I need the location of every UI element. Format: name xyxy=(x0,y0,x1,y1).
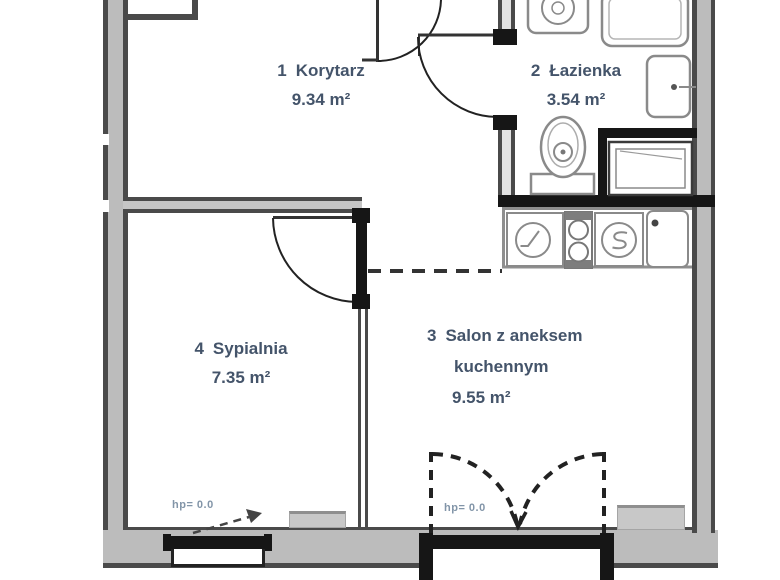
room-label-bathroom: 2Łazienka 3.54 m² xyxy=(500,56,652,114)
room-number: 1 xyxy=(277,61,286,80)
room-name: Korytarz xyxy=(296,61,365,80)
two-burner-stove-icon xyxy=(565,212,592,268)
bedroom-door-jamb-bottom xyxy=(352,294,370,309)
niche-right-edge xyxy=(192,0,198,20)
bedroom-window-cap-left xyxy=(163,534,171,551)
entry-door xyxy=(362,0,441,62)
bathroom-door-jamb-bottom xyxy=(493,115,517,130)
niche-bottom-edge xyxy=(123,14,198,20)
room-area: 9.34 m² xyxy=(241,85,401,114)
wall-right-inner-edge xyxy=(692,0,697,533)
bathroom-door-jamb-top xyxy=(493,29,517,45)
washbasin-icon xyxy=(647,56,696,117)
wall-bottom-outer-edge-right xyxy=(614,563,718,568)
wall-right-fill xyxy=(697,0,711,530)
wall-bedroom-top-line2 xyxy=(123,209,362,213)
wall-left-fill xyxy=(108,0,124,563)
shower-tray-icon xyxy=(602,0,688,46)
balcony-door-swing xyxy=(431,452,604,536)
room-label-corridor: 1Korytarz 9.34 m² xyxy=(241,56,401,114)
room-title: 3Salon z aneksem xyxy=(427,320,647,351)
washing-machine-icon xyxy=(528,0,588,33)
room-area: 7.35 m² xyxy=(160,363,322,392)
balcony-side-right xyxy=(600,533,614,580)
wall-left-inner-edge xyxy=(123,0,128,530)
room-number: 2 xyxy=(531,61,540,80)
wall-bathtub-niche-vertical xyxy=(598,128,607,207)
counter-basin-icon xyxy=(647,211,688,267)
room-name: Salon z aneksem xyxy=(445,326,582,345)
wall-left-joint-notch-upper xyxy=(101,134,109,145)
kitchen-sink-icon xyxy=(507,213,563,266)
room-number: 3 xyxy=(427,326,436,345)
wall-bathtub-niche-horizontal xyxy=(598,128,697,138)
balcony-opening xyxy=(430,549,603,580)
floor-line xyxy=(123,527,692,530)
room-area: 3.54 m² xyxy=(500,85,652,114)
balcony-side-left xyxy=(419,533,433,580)
balcony-door-sill xyxy=(424,535,614,549)
wall-left-joint-notch-lower xyxy=(101,200,109,212)
wall-bedroom-living-line1 xyxy=(358,305,361,530)
hp-label-bedroom-window: hp= 0.0 xyxy=(172,499,214,511)
radiator-living xyxy=(617,505,685,530)
room-name: Sypialnia xyxy=(213,339,288,358)
room-name: Łazienka xyxy=(549,61,621,80)
room-title: 1Korytarz xyxy=(241,56,401,85)
wall-left-outer-edge xyxy=(103,0,108,568)
bedroom-door-jamb-top xyxy=(352,208,370,223)
room-name-line2: kuchennym xyxy=(427,351,647,382)
hp-label-balcony-door: hp= 0.0 xyxy=(444,502,486,514)
room-title: 4Sypialnia xyxy=(160,334,322,363)
bathtub-icon xyxy=(609,142,692,195)
wall-bedroom-top-fill xyxy=(123,201,362,209)
bedroom-door xyxy=(273,218,357,303)
room-area: 9.55 m² xyxy=(427,382,647,413)
room-label-bedroom: 4Sypialnia 7.35 m² xyxy=(160,334,322,392)
kitchen-counter xyxy=(502,207,692,268)
room-label-living: 3Salon z aneksem kuchennym 9.55 m² xyxy=(427,320,647,413)
kitchen-appliance-icon xyxy=(595,213,643,266)
floor-plan: 1Korytarz 9.34 m² 2Łazienka 3.54 m² 3Sal… xyxy=(0,0,780,580)
room-number: 4 xyxy=(194,339,203,358)
wall-bedroom-living-line2 xyxy=(365,305,368,530)
radiator-bedroom xyxy=(289,511,346,528)
bedroom-window-sill xyxy=(167,536,268,549)
wall-right-outer-edge xyxy=(711,0,715,533)
bedroom-window-cap-right xyxy=(264,534,272,551)
bedroom-window-outer-box xyxy=(171,549,265,567)
bathroom-door xyxy=(418,35,498,117)
toilet-icon xyxy=(531,117,594,194)
room-title: 2Łazienka xyxy=(500,56,652,85)
